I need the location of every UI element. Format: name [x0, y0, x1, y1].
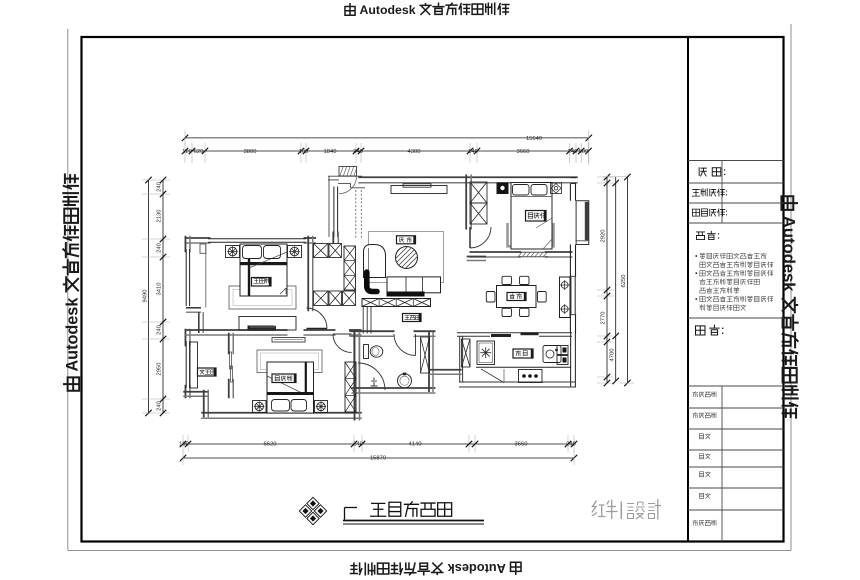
svg-text:240: 240 [157, 325, 163, 335]
svg-text:240: 240 [566, 442, 576, 448]
svg-text:6620: 6620 [264, 442, 277, 448]
svg-text:100: 100 [179, 442, 189, 448]
svg-text:240: 240 [353, 149, 363, 155]
svg-text:2130: 2130 [157, 210, 163, 223]
svg-text:3800: 3800 [244, 149, 257, 155]
svg-text:2920: 2920 [601, 230, 607, 243]
svg-text:240: 240 [157, 182, 163, 192]
svg-text:4300: 4300 [408, 149, 421, 155]
svg-text:3660: 3660 [515, 442, 528, 448]
svg-text:9490: 9490 [143, 290, 149, 303]
svg-text:4700: 4700 [610, 349, 616, 362]
svg-text:240: 240 [157, 401, 163, 411]
svg-text:15640: 15640 [526, 136, 542, 142]
svg-text:120: 120 [182, 149, 192, 155]
svg-text:3410: 3410 [157, 283, 163, 296]
svg-text:15870: 15870 [370, 456, 386, 462]
svg-text:100: 100 [299, 149, 309, 155]
svg-text:1840: 1840 [324, 149, 337, 155]
svg-text:2950: 2950 [157, 363, 163, 376]
svg-text:3660: 3660 [517, 149, 530, 155]
svg-text:4140: 4140 [409, 442, 422, 448]
svg-text:140: 140 [468, 149, 478, 155]
svg-text:620: 620 [194, 149, 204, 155]
svg-text:240: 240 [157, 243, 163, 253]
svg-text:240: 240 [568, 149, 578, 155]
svg-text:500: 500 [579, 149, 589, 155]
svg-text:6250: 6250 [621, 275, 627, 288]
svg-text:2770: 2770 [601, 312, 607, 325]
svg-text:240: 240 [353, 442, 363, 448]
